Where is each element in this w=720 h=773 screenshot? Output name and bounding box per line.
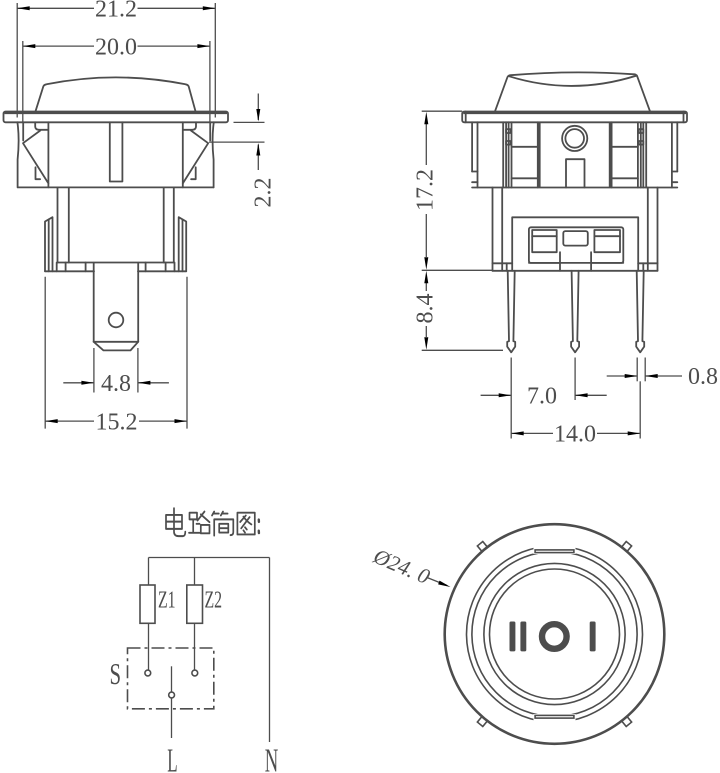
svg-text:S: S [110,656,122,691]
svg-text:15.2: 15.2 [96,409,138,435]
svg-text:Z1: Z1 [158,587,176,613]
svg-text:2.2: 2.2 [251,178,277,208]
svg-text:21.2: 21.2 [95,0,137,23]
svg-text:20.0: 20.0 [95,34,137,60]
svg-text:L: L [167,741,177,773]
svg-text:N: N [265,742,279,773]
svg-text:7.0: 7.0 [527,384,557,410]
svg-text:8.4: 8.4 [413,294,439,324]
svg-text:0.8: 0.8 [688,364,718,390]
svg-text:Z2: Z2 [205,587,223,613]
svg-text:17.2: 17.2 [413,169,439,211]
svg-text:14.0: 14.0 [554,422,596,448]
svg-text:4.8: 4.8 [101,371,131,397]
